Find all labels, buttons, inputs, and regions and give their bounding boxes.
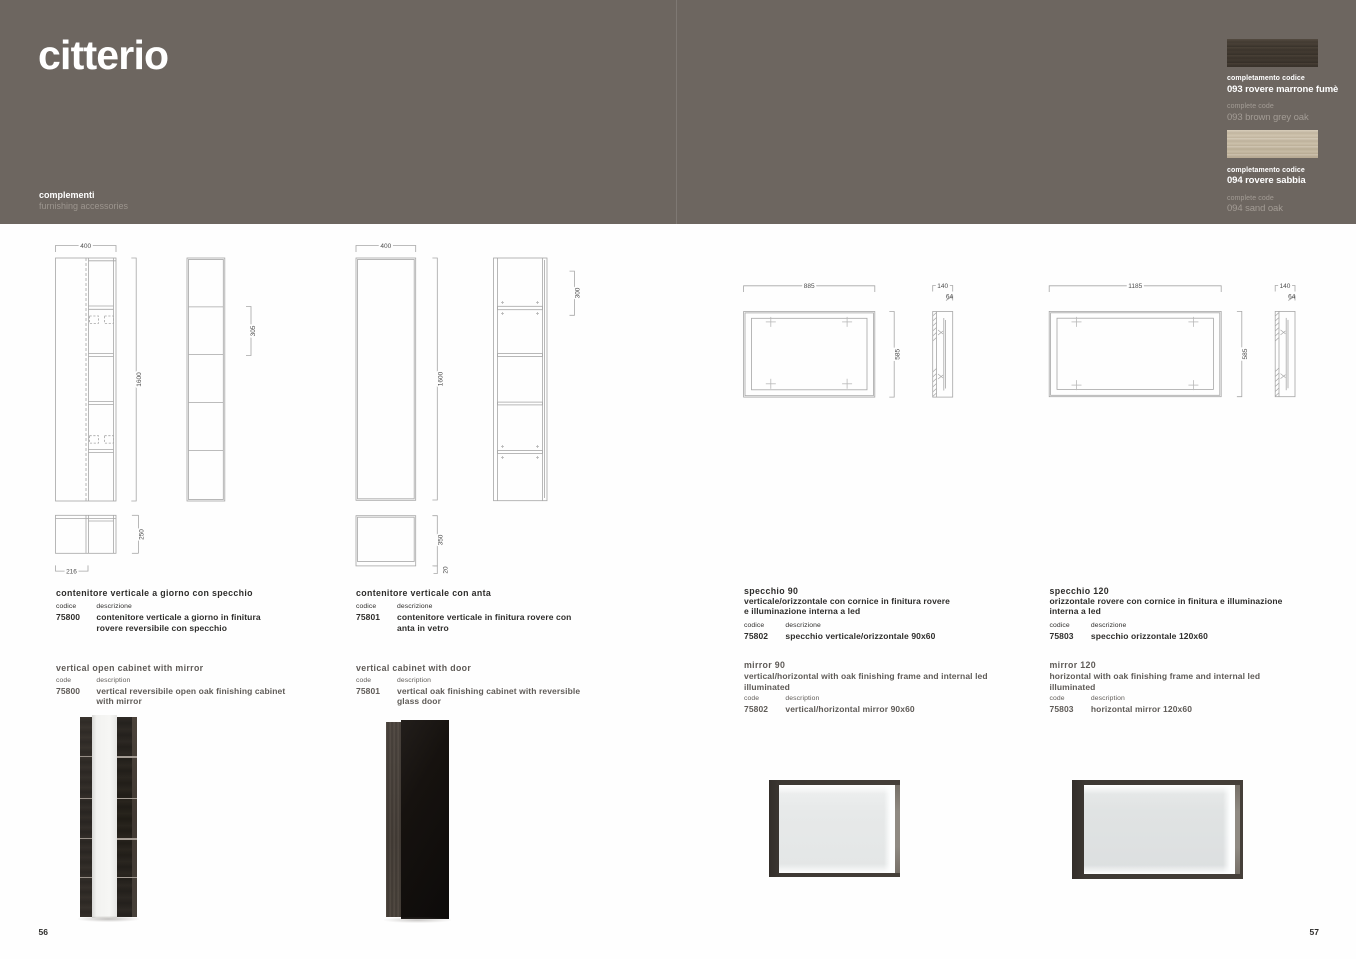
svg-text:400: 400 xyxy=(380,243,391,250)
svg-text:140: 140 xyxy=(937,283,948,290)
svg-text:1600: 1600 xyxy=(437,371,444,386)
svg-text:585: 585 xyxy=(895,348,902,359)
svg-text:300: 300 xyxy=(575,287,582,298)
svg-text:885: 885 xyxy=(804,283,815,290)
svg-text:216: 216 xyxy=(66,569,77,576)
svg-text:20: 20 xyxy=(443,566,450,574)
svg-text:305: 305 xyxy=(250,325,257,336)
svg-text:350: 350 xyxy=(437,534,444,545)
svg-text:1185: 1185 xyxy=(1128,283,1142,290)
svg-text:250: 250 xyxy=(139,529,146,540)
svg-text:64: 64 xyxy=(946,294,954,301)
svg-text:1600: 1600 xyxy=(136,372,143,387)
svg-text:585: 585 xyxy=(1242,348,1249,359)
svg-text:140: 140 xyxy=(1280,283,1291,290)
svg-text:64: 64 xyxy=(1288,294,1296,301)
svg-text:400: 400 xyxy=(80,243,91,250)
